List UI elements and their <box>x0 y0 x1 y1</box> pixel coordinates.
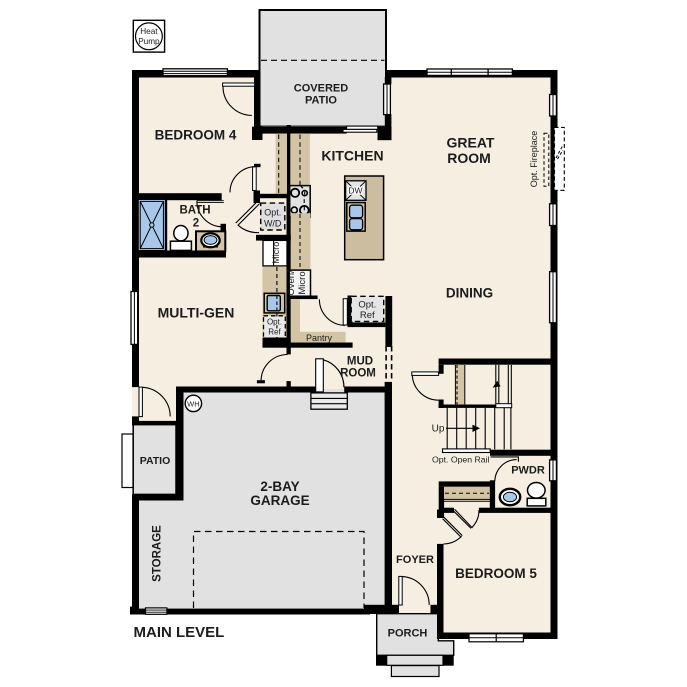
svg-text:2: 2 <box>193 218 199 230</box>
svg-text:FOYER: FOYER <box>396 554 434 566</box>
svg-text:BEDROOM 5: BEDROOM 5 <box>455 566 537 581</box>
svg-text:Micro: Micro <box>297 271 308 294</box>
svg-text:Pump: Pump <box>138 37 160 46</box>
svg-text:ROOM: ROOM <box>447 150 491 166</box>
svg-text:PATIO: PATIO <box>140 455 171 467</box>
svg-text:DINING: DINING <box>446 286 493 301</box>
svg-text:Ref: Ref <box>360 310 375 321</box>
svg-text:MAIN LEVEL: MAIN LEVEL <box>134 624 225 641</box>
svg-text:Pantry: Pantry <box>306 333 333 343</box>
svg-text:ROOM: ROOM <box>340 368 376 380</box>
svg-text:Ref: Ref <box>268 328 281 337</box>
svg-text:WH: WH <box>187 399 200 408</box>
svg-text:Opt. Open Rail: Opt. Open Rail <box>432 454 490 464</box>
svg-text:COVERED: COVERED <box>294 83 348 95</box>
svg-text:Oven/: Oven/ <box>286 270 297 296</box>
svg-text:KITCHEN: KITCHEN <box>321 148 383 164</box>
svg-text:PWDR: PWDR <box>511 465 545 477</box>
svg-text:GREAT: GREAT <box>447 135 495 151</box>
svg-text:BATH: BATH <box>179 205 210 217</box>
svg-text:Heat: Heat <box>140 27 158 36</box>
svg-text:BEDROOM 4: BEDROOM 4 <box>155 128 237 143</box>
svg-text:MUD: MUD <box>347 356 373 368</box>
svg-text:2-BAY: 2-BAY <box>260 479 299 494</box>
svg-text:STORAGE: STORAGE <box>152 525 164 582</box>
svg-text:Opt.: Opt. <box>358 300 376 311</box>
svg-text:Opt.: Opt. <box>264 208 281 218</box>
svg-text:Micro: Micro <box>271 242 281 264</box>
svg-text:Up: Up <box>432 424 445 435</box>
svg-text:Opt.: Opt. <box>267 318 282 327</box>
svg-text:MULTI-GEN: MULTI-GEN <box>158 305 235 321</box>
svg-text:Opt. Fireplace: Opt. Fireplace <box>529 131 539 188</box>
svg-text:GARAGE: GARAGE <box>250 493 309 508</box>
svg-text:DW: DW <box>348 186 362 196</box>
svg-text:PORCH: PORCH <box>388 627 428 639</box>
svg-text:W/D: W/D <box>264 219 282 229</box>
svg-text:PATIO: PATIO <box>305 95 337 107</box>
